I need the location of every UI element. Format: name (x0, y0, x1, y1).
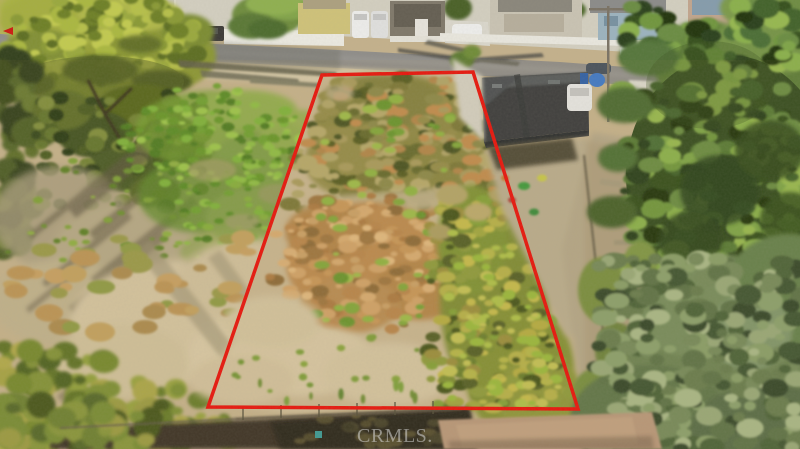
svg-text:CRMLS.: CRMLS. (357, 425, 433, 447)
